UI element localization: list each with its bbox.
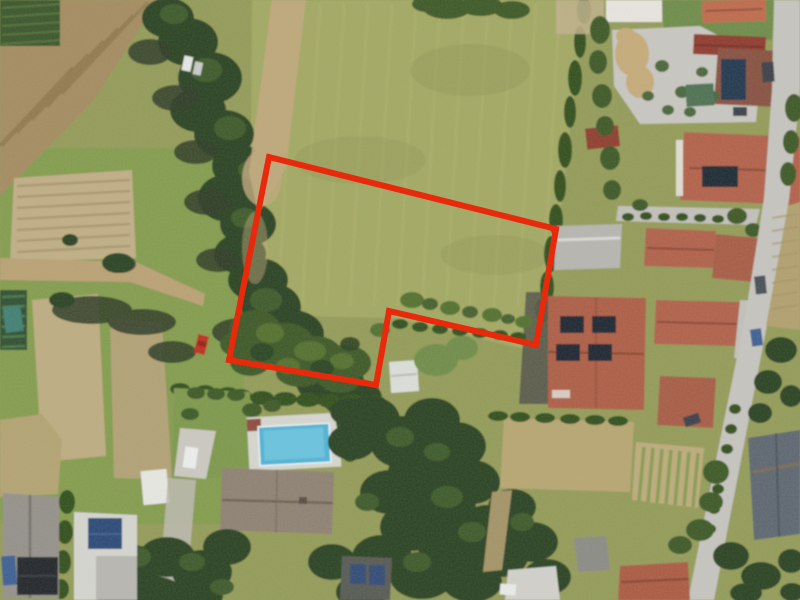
listing-photo (0, 0, 800, 600)
photo-grain-overlay (0, 0, 800, 600)
satellite-image (0, 0, 800, 600)
